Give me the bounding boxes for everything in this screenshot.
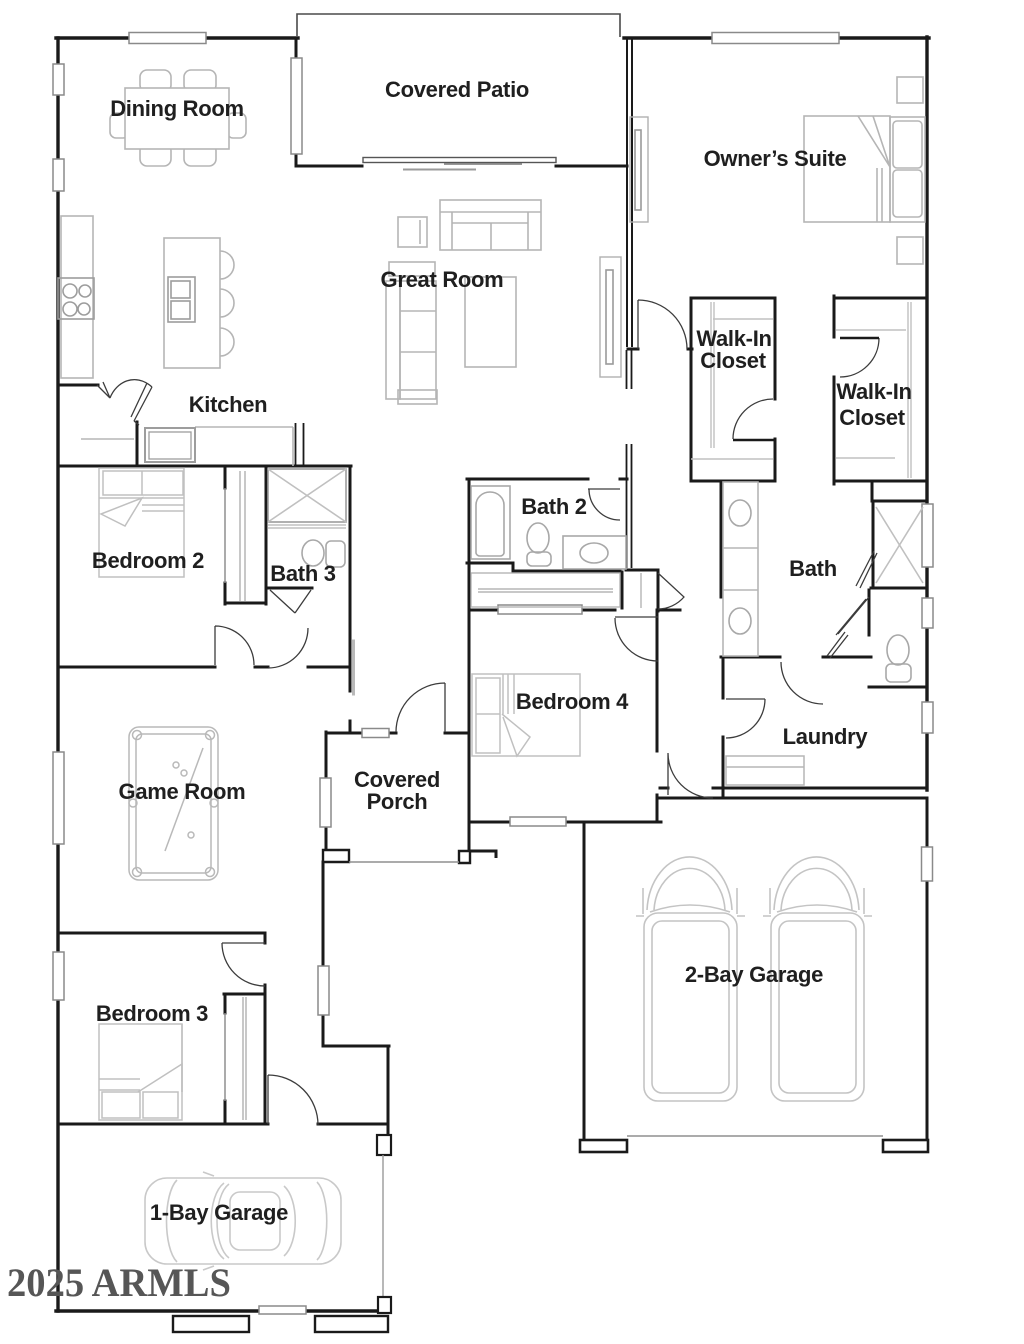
svg-text:Laundry: Laundry (783, 724, 869, 749)
svg-text:Bath 3: Bath 3 (270, 561, 336, 586)
svg-text:Covered Patio: Covered Patio (385, 77, 529, 102)
svg-text:Game Room: Game Room (119, 779, 246, 804)
svg-text:Bath: Bath (789, 556, 837, 581)
svg-text:1-Bay Garage: 1-Bay Garage (150, 1200, 288, 1225)
svg-text:2025 ARMLS: 2025 ARMLS (7, 1260, 231, 1305)
svg-text:Bedroom 3: Bedroom 3 (96, 1001, 208, 1026)
svg-text:Bedroom 4: Bedroom 4 (516, 689, 629, 714)
svg-text:Owner’s Suite: Owner’s Suite (704, 146, 847, 171)
svg-text:Walk-In: Walk-In (836, 379, 911, 404)
svg-text:Great Room: Great Room (381, 267, 504, 292)
svg-text:Bath 2: Bath 2 (521, 494, 587, 519)
svg-text:Bedroom 2: Bedroom 2 (92, 548, 204, 573)
svg-text:2-Bay Garage: 2-Bay Garage (685, 962, 823, 987)
svg-text:Dining Room: Dining Room (110, 96, 244, 121)
svg-text:Kitchen: Kitchen (189, 392, 268, 417)
svg-text:Closet: Closet (700, 348, 766, 373)
svg-text:Closet: Closet (839, 405, 905, 430)
svg-text:Porch: Porch (367, 789, 428, 814)
